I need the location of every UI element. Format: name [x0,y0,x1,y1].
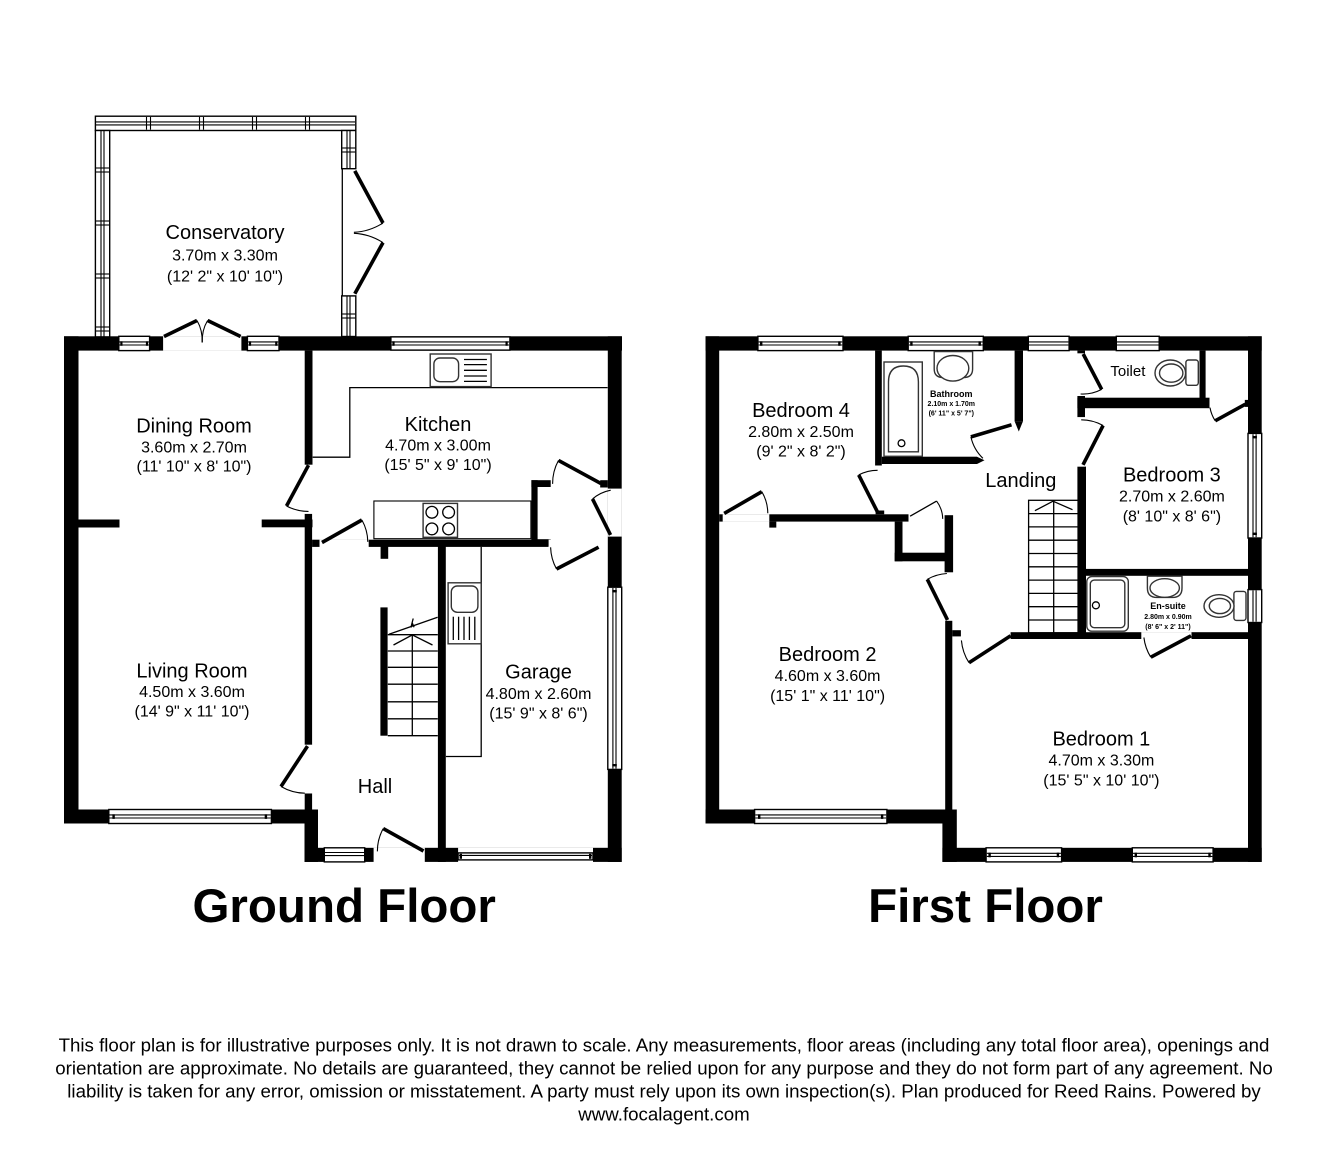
svg-text:(9' 2" x 8' 2"): (9' 2" x 8' 2") [756,444,846,461]
svg-text:Garage: Garage [505,662,572,684]
svg-text:(15' 5" x 10' 10"): (15' 5" x 10' 10") [1043,773,1159,790]
svg-text:(8' 6" x 2' 11"): (8' 6" x 2' 11") [1145,624,1190,631]
svg-text:(6' 11" x 5' 7"): (6' 11" x 5' 7") [929,411,974,418]
svg-text:Bedroom 3: Bedroom 3 [1123,465,1221,487]
svg-text:www.focalagent.com: www.focalagent.com [577,1104,749,1125]
svg-text:3.70m x 3.30m: 3.70m x 3.30m [172,248,278,265]
svg-text:Kitchen: Kitchen [405,414,472,436]
svg-text:2.80m x 2.50m: 2.80m x 2.50m [748,424,854,441]
svg-text:(8' 10" x 8' 6"): (8' 10" x 8' 6") [1123,509,1221,526]
svg-text:Conservatory: Conservatory [166,222,285,244]
svg-text:Ground Floor: Ground Floor [192,880,495,933]
svg-text:First Floor: First Floor [868,880,1103,933]
svg-text:Landing: Landing [985,470,1056,492]
svg-text:(15' 9" x 8' 6"): (15' 9" x 8' 6") [489,706,587,723]
svg-text:2.80m x 0.90m: 2.80m x 0.90m [1144,614,1191,621]
svg-text:Living Room: Living Room [136,661,247,683]
svg-text:(12' 2" x 10' 10"): (12' 2" x 10' 10") [167,269,283,286]
svg-text:2.70m x 2.60m: 2.70m x 2.60m [1119,489,1225,506]
svg-text:4.70m x 3.00m: 4.70m x 3.00m [385,438,491,455]
svg-text:(15' 5" x 9' 10"): (15' 5" x 9' 10") [384,457,491,474]
svg-text:En-suite: En-suite [1150,601,1186,611]
svg-text:2.10m x 1.70m: 2.10m x 1.70m [928,401,975,408]
svg-text:4.50m x 3.60m: 4.50m x 3.60m [139,684,245,701]
svg-text:liability is taken for any err: liability is taken for any error, omissi… [67,1081,1261,1102]
svg-text:(14' 9" x 11' 10"): (14' 9" x 11' 10") [134,704,249,721]
svg-text:Toilet: Toilet [1110,363,1146,380]
svg-text:3.60m x 2.70m: 3.60m x 2.70m [141,439,247,456]
svg-text:Bedroom 2: Bedroom 2 [779,644,877,666]
svg-text:This floor plan is for illustr: This floor plan is for illustrative purp… [59,1035,1270,1056]
svg-text:Bedroom 4: Bedroom 4 [752,400,850,422]
svg-text:4.60m x 3.60m: 4.60m x 3.60m [775,668,881,685]
svg-text:(15' 1" x 11' 10"): (15' 1" x 11' 10") [770,688,885,705]
svg-text:Bedroom 1: Bedroom 1 [1052,729,1150,751]
svg-text:Dining Room: Dining Room [136,416,252,438]
svg-text:4.70m x 3.30m: 4.70m x 3.30m [1048,753,1154,770]
svg-text:(11' 10" x 8' 10"): (11' 10" x 8' 10") [136,459,251,476]
svg-text:Bathroom: Bathroom [930,389,973,399]
svg-text:Hall: Hall [358,776,392,798]
svg-text:4.80m x 2.60m: 4.80m x 2.60m [486,686,592,703]
svg-text:orientation are approximate. N: orientation are approximate. No details … [55,1058,1273,1079]
